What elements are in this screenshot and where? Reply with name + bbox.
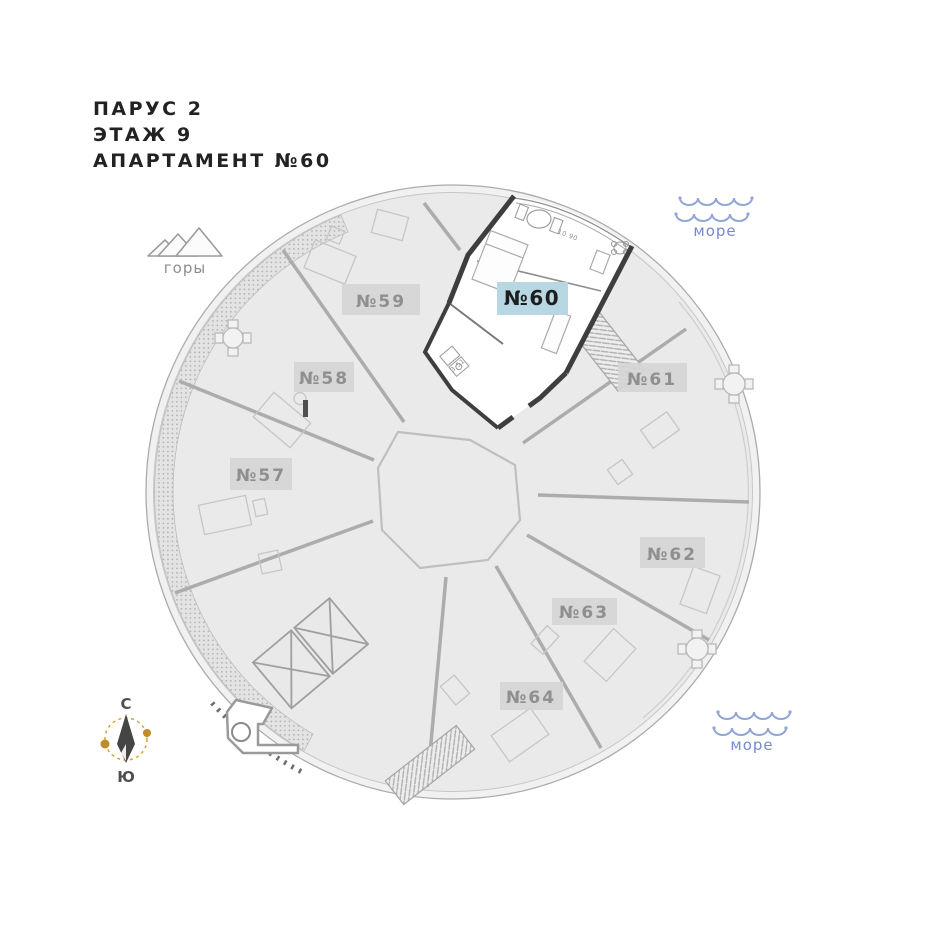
floorplan-canvas: ПАРУС 2 ЭТАЖ 9 АПАРТАМЕНТ №60 горы море … — [0, 0, 950, 950]
apartment-60-badge[interactable]: №60 — [497, 282, 568, 315]
mountains-legend: горы — [148, 228, 222, 277]
apartment-58-number: №58 — [299, 369, 349, 389]
apartment-58-badge[interactable]: №58 — [294, 362, 354, 392]
waves-icon — [674, 196, 753, 221]
floorplan-page: ПАРУС 2 ЭТАЖ 9 АПАРТАМЕНТ №60 горы море … — [0, 0, 950, 950]
apartment-61-number: №61 — [627, 370, 677, 390]
sea-legend-top: море — [674, 196, 753, 240]
page-title: ПАРУС 2 ЭТАЖ 9 АПАРТАМЕНТ №60 — [93, 98, 332, 172]
apartment-60-number: №60 — [504, 286, 560, 310]
title-line-3: АПАРТАМЕНТ №60 — [93, 150, 332, 172]
apartment-59-badge[interactable]: №59 — [342, 284, 420, 315]
mountains-icon — [148, 228, 222, 256]
sea-label-bottom: море — [730, 736, 773, 754]
apartment-57-badge[interactable]: №57 — [230, 458, 292, 490]
apartment-59-number: №59 — [356, 292, 406, 312]
apartment-63-number: №63 — [559, 603, 609, 623]
wall-mark — [303, 400, 308, 417]
compass-north-label: С — [120, 695, 131, 713]
sea-label-top: море — [693, 222, 736, 240]
apartment-62-number: №62 — [647, 545, 697, 565]
compass-icon: С Ю — [101, 695, 152, 786]
apartment-62-badge[interactable]: №62 — [640, 537, 705, 568]
entrance-column — [232, 723, 250, 741]
mountains-label: горы — [164, 259, 206, 277]
apartment-64-badge[interactable]: №64 — [500, 682, 563, 710]
compass-south-label: Ю — [117, 768, 135, 786]
title-line-1: ПАРУС 2 — [93, 98, 203, 120]
apartment-57-number: №57 — [236, 466, 286, 486]
title-line-2: ЭТАЖ 9 — [93, 124, 193, 146]
apartment-63-badge[interactable]: №63 — [552, 598, 617, 625]
waves-icon — [712, 710, 791, 735]
sea-legend-bottom: море — [712, 710, 791, 754]
apartment-61-badge[interactable]: №61 — [618, 363, 687, 392]
apartment-64-number: №64 — [506, 688, 556, 708]
